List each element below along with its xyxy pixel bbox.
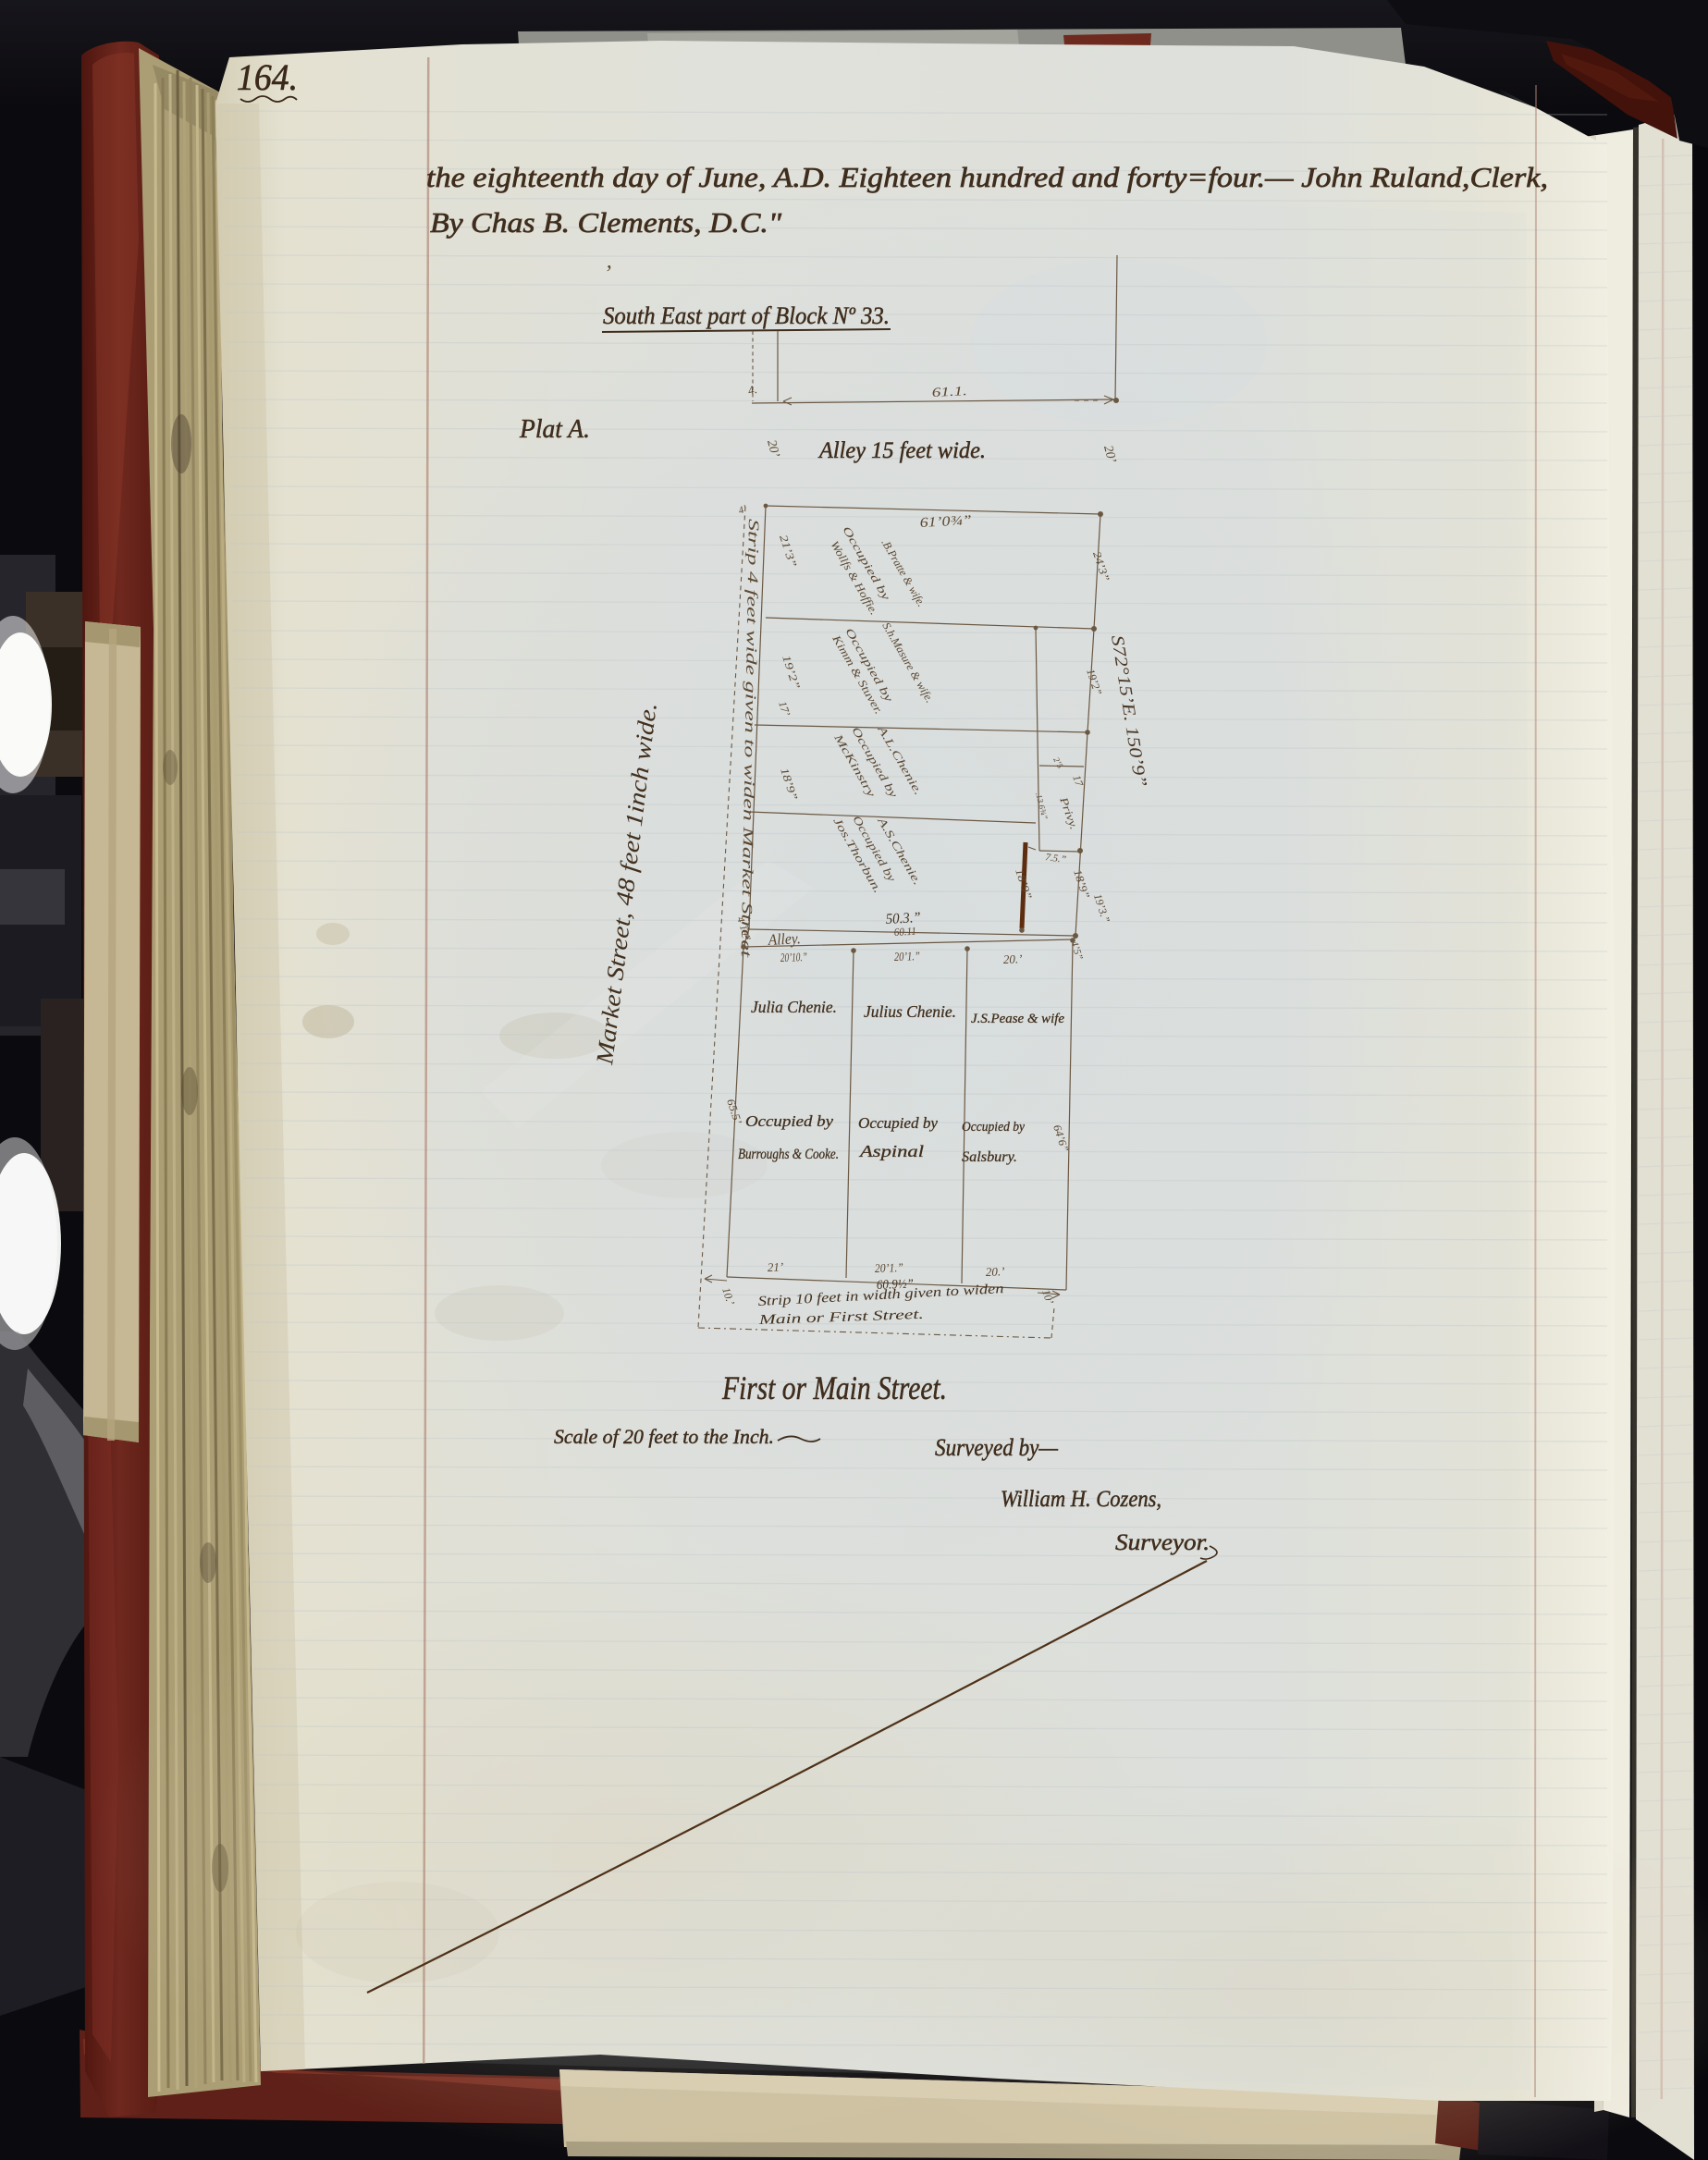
svg-text:Salsbury.: Salsbury. [962,1149,1017,1165]
svg-text:Occupied by: Occupied by [745,1112,833,1130]
svg-text:South East part of Block Nº 3: South East part of Block Nº 33. [603,302,890,329]
svg-text:60.11: 60.11 [893,925,916,939]
svg-text:20.’: 20.’ [986,1264,1005,1279]
svg-text:Surveyor.: Surveyor. [1115,1530,1210,1555]
svg-text:20’1.”: 20’1.” [875,1260,904,1275]
svg-text:20.’: 20.’ [1003,951,1023,966]
svg-text:’: ’ [604,262,611,286]
svg-text:the eighteenth day of June, A.: the eighteenth day of June, A.D. Eightee… [426,161,1548,193]
svg-text:20’10.”: 20’10.” [780,950,808,964]
svg-text:21’: 21’ [768,1259,784,1274]
svg-text:Burroughs & Cooke.: Burroughs & Cooke. [738,1147,839,1162]
svg-text:Scale of 20 feet to the Inch.: Scale of 20 feet to the Inch. [554,1425,774,1448]
svg-text:Occupied by: Occupied by [962,1120,1025,1135]
svg-text:20’1.”: 20’1.” [894,949,921,963]
svg-text:Aspinal: Aspinal [859,1142,924,1160]
svg-text:J.S.Pease & wife: J.S.Pease & wife [971,1012,1064,1026]
svg-text:By Chas B. Clements, D.C.": By Chas B. Clements, D.C." [430,206,782,239]
svg-text:61.1.: 61.1. [931,385,967,400]
svg-text:61’0¾”: 61’0¾” [919,513,972,531]
svg-text:Julia Chenie.: Julia Chenie. [751,998,837,1016]
svg-text:Alley 15 feet wide.: Alley 15 feet wide. [817,438,986,463]
svg-text:Occupied by: Occupied by [858,1114,938,1132]
svg-text:First or Main Street.: First or Main Street. [721,1369,947,1406]
svg-text:Plat A.: Plat A. [519,415,590,444]
svg-text:Alley.: Alley. [767,929,801,949]
svg-text:Julius Chenie.: Julius Chenie. [864,1002,956,1021]
svg-text:164.: 164. [237,56,298,98]
svg-text:Surveyed by—: Surveyed by— [935,1434,1059,1461]
svg-text:William H. Cozens,: William H. Cozens, [1001,1487,1161,1512]
